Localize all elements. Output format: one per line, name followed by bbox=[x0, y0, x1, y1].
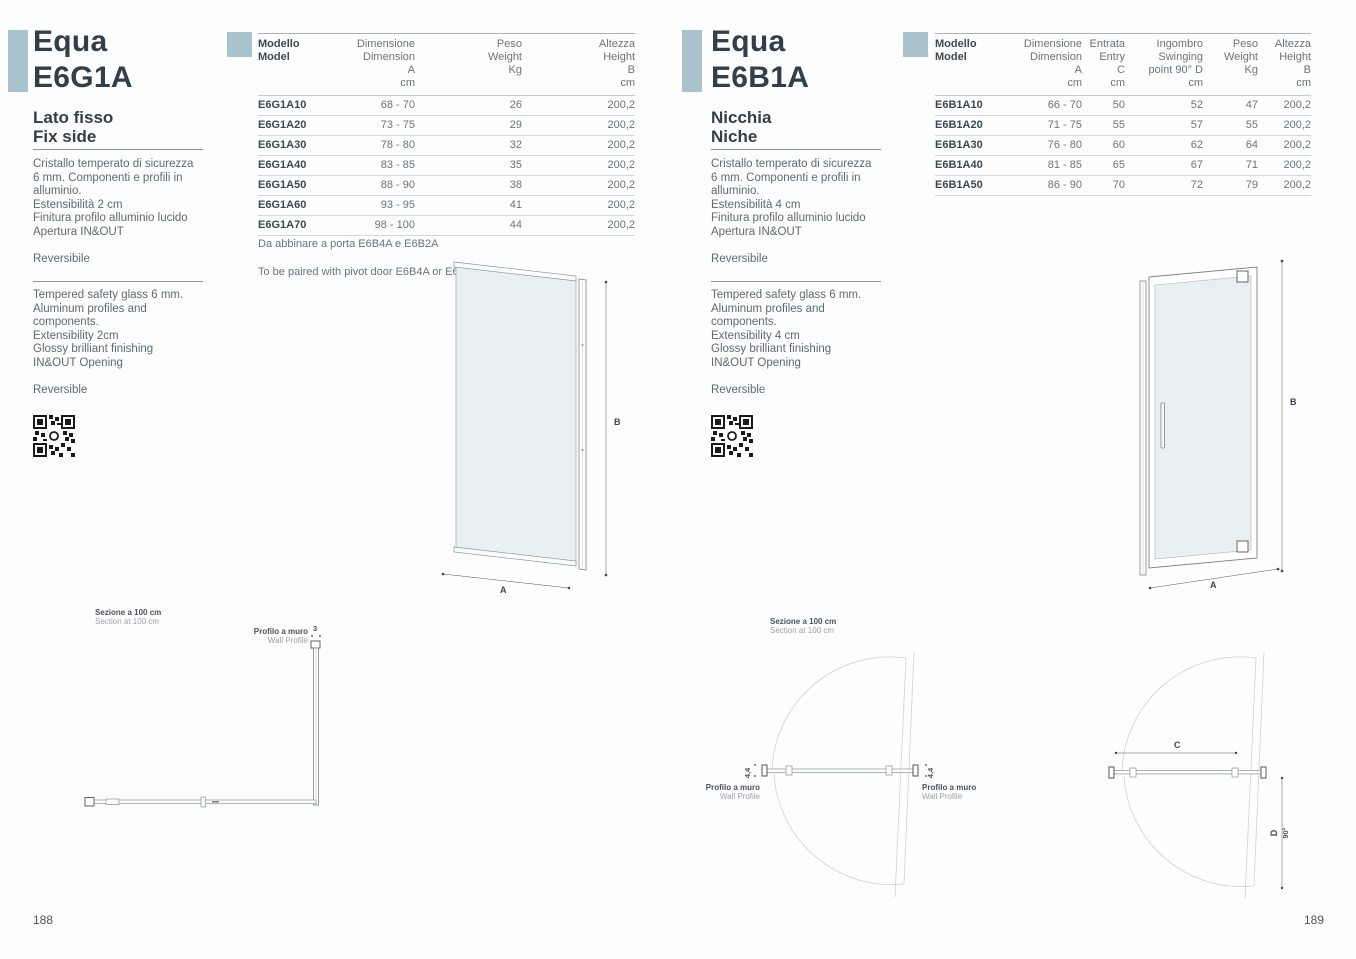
col-header-weight: Peso Weight Kg bbox=[415, 34, 522, 96]
wall-profile-label-en: Wall Profile bbox=[720, 792, 761, 801]
value-cell: 26 bbox=[415, 96, 522, 116]
wall-profile-label-it: Profilo a muro bbox=[706, 783, 760, 792]
value-cell: 55 bbox=[1082, 116, 1125, 136]
table-header-row: Modello Model Dimensione Dimension A cm … bbox=[258, 34, 635, 96]
table-row: E6G1A6093 - 9541200,2 bbox=[258, 196, 635, 216]
spec-table-body: E6B1A1066 - 70505247200,2E6B1A2071 - 755… bbox=[935, 96, 1311, 196]
value-cell: 64 bbox=[1203, 136, 1258, 156]
col-header-height: Altezza Height B cm bbox=[522, 34, 635, 96]
width-dimension-label: A bbox=[500, 585, 507, 595]
value-cell: 67 bbox=[1125, 156, 1203, 176]
wall-profile-label-it: Profilo a muro bbox=[254, 627, 308, 636]
value-cell: 73 - 75 bbox=[330, 116, 415, 136]
profile-width-dim: 3 bbox=[313, 624, 317, 633]
divider bbox=[33, 281, 203, 282]
table-row: E6G1A3078 - 8032200,2 bbox=[258, 136, 635, 156]
wall-bracket bbox=[311, 641, 320, 648]
value-cell: 200,2 bbox=[1258, 96, 1311, 116]
model-cell: E6B1A10 bbox=[935, 96, 1010, 116]
top-hinge bbox=[1237, 271, 1248, 282]
accent-bar bbox=[8, 30, 28, 92]
value-cell: 79 bbox=[1203, 176, 1258, 196]
value-cell: 200,2 bbox=[522, 216, 635, 236]
value-cell: 35 bbox=[415, 156, 522, 176]
value-cell: 200,2 bbox=[522, 116, 635, 136]
value-cell: 68 - 70 bbox=[330, 96, 415, 116]
table-row: E6B1A4081 - 85656771200,2 bbox=[935, 156, 1311, 176]
value-cell: 200,2 bbox=[522, 96, 635, 116]
accent-bar bbox=[682, 30, 702, 92]
product-type-it: Lato fisso bbox=[33, 108, 113, 127]
value-cell: 78 - 80 bbox=[330, 136, 415, 156]
model-code: E6G1A bbox=[33, 60, 133, 96]
table-header-row: Modello Model Dimensione Dimension A cm … bbox=[935, 34, 1311, 96]
table-row: E6B1A3076 - 80606264200,2 bbox=[935, 136, 1311, 156]
model-cell: E6G1A10 bbox=[258, 96, 330, 116]
value-cell: 47 bbox=[1203, 96, 1258, 116]
col-header-dimension: Dimensione Dimension A cm bbox=[1010, 34, 1082, 96]
value-cell: 70 bbox=[1082, 176, 1125, 196]
value-cell: 41 bbox=[415, 196, 522, 216]
wall-section-drawing: Sezione a 100 cm Section at 100 cm Profi… bbox=[80, 600, 340, 830]
col-header-weight: Peso Weight Kg bbox=[1203, 34, 1258, 96]
product-type-en: Niche bbox=[711, 127, 771, 146]
left-wall-profile bbox=[762, 765, 767, 776]
value-cell: 60 bbox=[1082, 136, 1125, 156]
wall-profile-label-en: Wall Profile bbox=[922, 792, 963, 801]
swing-arcs bbox=[1122, 652, 1264, 898]
swing-dimension-label: D bbox=[1269, 829, 1279, 836]
col-header-swinging: Ingombro Swinging point 90° D cm bbox=[1125, 34, 1203, 96]
page-title: Equa E6G1A bbox=[33, 24, 133, 96]
table-row: E6B1A1066 - 70505247200,2 bbox=[935, 96, 1311, 116]
section-title-en: Section at 100 cm bbox=[770, 626, 834, 635]
table-row: E6B1A5086 - 90707279200,2 bbox=[935, 176, 1311, 196]
reversible-note-en: Reversible bbox=[711, 384, 765, 396]
value-cell: 86 - 90 bbox=[1010, 176, 1082, 196]
value-cell: 76 - 80 bbox=[1010, 136, 1082, 156]
catalog-spread: Equa E6G1A Lato fisso Fix side Cristallo… bbox=[0, 0, 1356, 959]
swing-clearance-drawing: C D 90° bbox=[1080, 620, 1340, 910]
table-row: E6G1A5088 - 9038200,2 bbox=[258, 176, 635, 196]
description-english: Tempered safety glass 6 mm. Aluminum pro… bbox=[33, 289, 233, 371]
col-header-model: Modello Model bbox=[935, 34, 1010, 96]
wall-profile-label-en: Wall Profile bbox=[268, 636, 309, 645]
table-row: E6B1A2071 - 75555755200,2 bbox=[935, 116, 1311, 136]
value-cell: 200,2 bbox=[1258, 176, 1311, 196]
swing-section-drawing: Sezione a 100 cm Section at 100 cm 4,4 4… bbox=[700, 610, 980, 900]
col-header-entry: Entrata Entry C cm bbox=[1082, 34, 1125, 96]
wall-profile-label-it: Profilo a muro bbox=[922, 783, 976, 792]
glass-panel bbox=[1155, 276, 1251, 559]
value-cell: 88 - 90 bbox=[330, 176, 415, 196]
model-cell: E6B1A20 bbox=[935, 116, 1010, 136]
value-cell: 38 bbox=[415, 176, 522, 196]
extensibility-dim-right: 4,4 bbox=[926, 767, 935, 778]
value-cell: 57 bbox=[1125, 116, 1203, 136]
table-row: E6G1A4083 - 8535200,2 bbox=[258, 156, 635, 176]
value-cell: 71 - 75 bbox=[1010, 116, 1082, 136]
extensibility-dim-left: 4,4 bbox=[743, 767, 752, 778]
reversible-note-it: Reversibile bbox=[33, 253, 90, 265]
model-cell: E6G1A60 bbox=[258, 196, 330, 216]
model-cell: E6B1A40 bbox=[935, 156, 1010, 176]
value-cell: 66 - 70 bbox=[1010, 96, 1082, 116]
bottom-hinge bbox=[1237, 541, 1248, 552]
center-clamp bbox=[201, 797, 206, 807]
value-cell: 62 bbox=[1125, 136, 1203, 156]
col-header-dimension: Dimensione Dimension A cm bbox=[330, 34, 415, 96]
width-dimension-label: A bbox=[1210, 580, 1217, 590]
product-type: Nicchia Niche bbox=[711, 108, 771, 146]
value-cell: 55 bbox=[1203, 116, 1258, 136]
page-number: 189 bbox=[1280, 913, 1324, 927]
value-cell: 65 bbox=[1082, 156, 1125, 176]
description-english: Tempered safety glass 6 mm. Aluminum pro… bbox=[711, 289, 911, 371]
height-dimension-label: B bbox=[614, 417, 621, 427]
right-wall-profile bbox=[1261, 767, 1266, 778]
divider bbox=[711, 149, 881, 150]
model-code: E6B1A bbox=[711, 60, 809, 96]
value-cell: 50 bbox=[1082, 96, 1125, 116]
reversible-note-it: Reversibile bbox=[711, 253, 768, 265]
door-handle bbox=[1161, 403, 1165, 448]
accent-square bbox=[227, 32, 252, 57]
value-cell: 32 bbox=[415, 136, 522, 156]
value-cell: 52 bbox=[1125, 96, 1203, 116]
qr-code bbox=[711, 415, 753, 457]
end-connector bbox=[85, 798, 94, 807]
swing-arcs bbox=[772, 652, 914, 897]
table-row: E6G1A2073 - 7529200,2 bbox=[258, 116, 635, 136]
door-diagram: B A bbox=[1120, 245, 1340, 605]
left-wall-profile bbox=[1109, 767, 1114, 778]
right-wall-profile bbox=[913, 765, 918, 776]
product-type-en: Fix side bbox=[33, 127, 113, 146]
page-number: 188 bbox=[33, 913, 53, 927]
panel-diagram: B A bbox=[430, 250, 650, 600]
accent-square bbox=[903, 32, 928, 57]
model-cell: E6B1A30 bbox=[935, 136, 1010, 156]
value-cell: 93 - 95 bbox=[330, 196, 415, 216]
value-cell: 200,2 bbox=[522, 136, 635, 156]
spec-table: Modello Model Dimensione Dimension A cm … bbox=[258, 33, 635, 236]
product-type-it: Nicchia bbox=[711, 108, 771, 127]
model-cell: E6G1A30 bbox=[258, 136, 330, 156]
col-header-model: Modello Model bbox=[258, 34, 330, 96]
qr-code bbox=[33, 415, 75, 457]
divider bbox=[711, 281, 881, 282]
value-cell: 81 - 85 bbox=[1010, 156, 1082, 176]
section-title-it: Sezione a 100 cm bbox=[770, 617, 836, 626]
value-cell: 200,2 bbox=[1258, 136, 1311, 156]
series-name: Equa bbox=[33, 24, 133, 60]
spec-table: Modello Model Dimensione Dimension A cm … bbox=[935, 33, 1311, 196]
value-cell: 200,2 bbox=[522, 156, 635, 176]
description-italian: Cristallo temperato di sicurezza 6 mm. C… bbox=[33, 158, 233, 240]
table-row: E6G1A1068 - 7026200,2 bbox=[258, 96, 635, 116]
model-cell: E6G1A50 bbox=[258, 176, 330, 196]
value-cell: 72 bbox=[1125, 176, 1203, 196]
reversible-note-en: Reversible bbox=[33, 384, 87, 396]
divider bbox=[33, 149, 203, 150]
section-title-it: Sezione a 100 cm bbox=[95, 608, 161, 617]
value-cell: 71 bbox=[1203, 156, 1258, 176]
swing-angle-label: 90° bbox=[1281, 827, 1290, 838]
entry-dimension-label: C bbox=[1174, 740, 1181, 750]
value-cell: 200,2 bbox=[1258, 116, 1311, 136]
height-dimension-label: B bbox=[1290, 397, 1297, 407]
spec-table-body: E6G1A1068 - 7026200,2E6G1A2073 - 7529200… bbox=[258, 96, 635, 236]
value-cell: 29 bbox=[415, 116, 522, 136]
description-italian: Cristallo temperato di sicurezza 6 mm. C… bbox=[711, 158, 911, 240]
series-name: Equa bbox=[711, 24, 809, 60]
model-cell: E6B1A50 bbox=[935, 176, 1010, 196]
section-title-en: Section at 100 cm bbox=[95, 617, 159, 626]
page-title: Equa E6B1A bbox=[711, 24, 809, 96]
value-cell: 200,2 bbox=[1258, 156, 1311, 176]
value-cell: 200,2 bbox=[522, 176, 635, 196]
value-cell: 200,2 bbox=[522, 196, 635, 216]
model-cell: E6G1A40 bbox=[258, 156, 330, 176]
product-type: Lato fisso Fix side bbox=[33, 108, 113, 146]
glass-panel bbox=[456, 266, 576, 565]
value-cell: 83 - 85 bbox=[330, 156, 415, 176]
pairing-note-it: Da abbinare a porta E6B4A e E6B2A bbox=[258, 237, 479, 251]
model-cell: E6G1A20 bbox=[258, 116, 330, 136]
col-header-height: Altezza Height B cm bbox=[1258, 34, 1311, 96]
